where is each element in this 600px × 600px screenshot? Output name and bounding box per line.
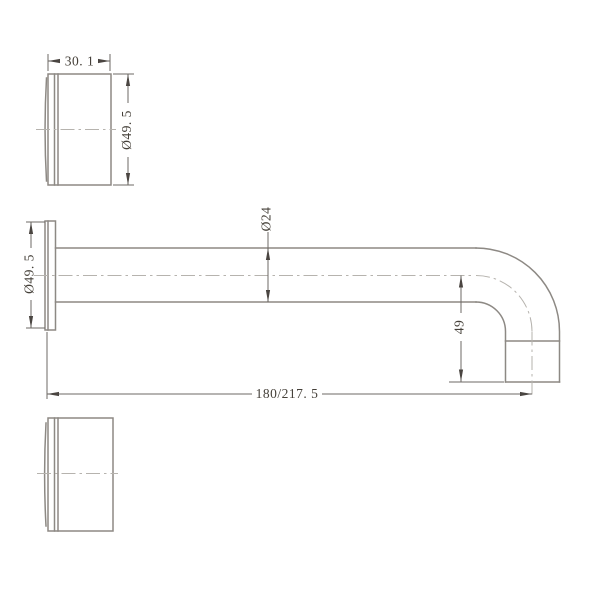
dimension-flange-diameter-top: Ø49. 5 bbox=[113, 74, 134, 185]
dimension-body-depth: 30. 1 bbox=[48, 54, 110, 72]
arrowhead-down bbox=[459, 370, 463, 382]
dim-label-wall-to-outlet-reach: 180/217. 5 bbox=[256, 386, 319, 401]
dimension-tube-diameter: Ø24 bbox=[259, 207, 274, 302]
arrowhead-down bbox=[29, 316, 33, 328]
arrowhead-up bbox=[29, 222, 33, 234]
arrowhead-up bbox=[126, 74, 130, 86]
bend-outer-curve bbox=[476, 248, 560, 382]
dim-label-tube-diameter: Ø24 bbox=[259, 207, 274, 232]
dim-label-body-depth: 30. 1 bbox=[65, 54, 95, 69]
arrowhead-up bbox=[459, 276, 463, 288]
arrowhead-up bbox=[266, 248, 270, 260]
arrowhead-right bbox=[98, 59, 110, 63]
arrowhead-right bbox=[520, 392, 532, 396]
arrowhead-left bbox=[47, 392, 59, 396]
arrowhead-down bbox=[126, 173, 130, 185]
flange-face-arc bbox=[45, 423, 46, 526]
arrowhead-down bbox=[266, 290, 270, 302]
dim-label-flange-diameter: Ø49. 5 bbox=[22, 254, 37, 294]
front-view-flange-bottom bbox=[45, 418, 113, 531]
technical-drawing-canvas: 30. 1 Ø49. 5 Ø49. 5 Ø24 49 bbox=[0, 0, 600, 600]
dimension-outlet-drop: 49 bbox=[449, 276, 504, 383]
bend-inner-curve bbox=[476, 302, 506, 382]
dimension-wall-to-outlet-reach: 180/217. 5 bbox=[47, 332, 532, 401]
dim-label-outlet-drop: 49 bbox=[452, 320, 467, 335]
arrowhead-left bbox=[48, 59, 60, 63]
main-view-spout bbox=[45, 221, 560, 382]
spout-dimension-drawing: 30. 1 Ø49. 5 Ø49. 5 Ø24 49 bbox=[0, 0, 600, 600]
dim-label-flange-diameter: Ø49. 5 bbox=[119, 110, 134, 150]
